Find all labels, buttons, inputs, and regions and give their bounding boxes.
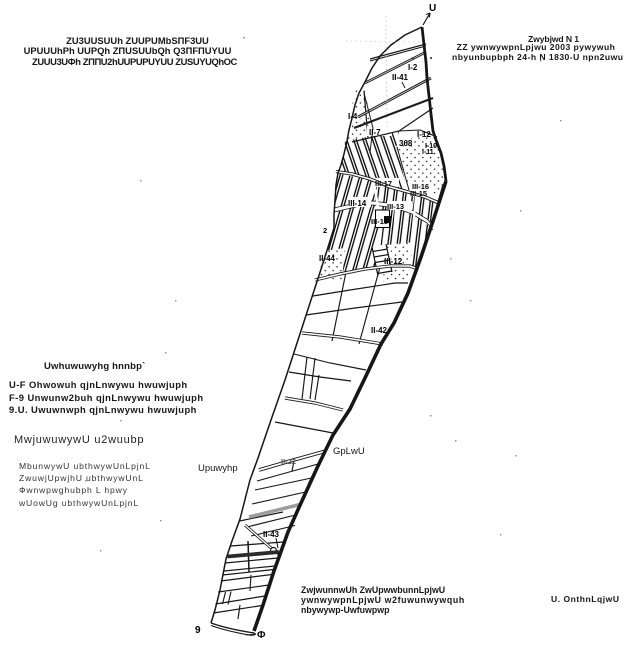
svg-text:II-7: II-7 xyxy=(369,128,381,137)
svg-text:II-22: II-22 xyxy=(281,457,296,466)
svg-text:III-17: III-17 xyxy=(375,179,392,188)
svg-text:II-41: II-41 xyxy=(392,73,409,82)
svg-text:I-12: I-12 xyxy=(417,130,431,139)
svg-text:U: U xyxy=(429,3,436,14)
svg-text:I-2: I-2 xyxy=(408,63,418,72)
svg-text:III-18: III-18 xyxy=(371,217,388,226)
svg-text:I-4: I-4 xyxy=(348,112,358,121)
svg-text:9: 9 xyxy=(195,625,201,636)
svg-text:Ф: Ф xyxy=(257,630,266,641)
svg-text:III-13: III-13 xyxy=(387,202,404,211)
svg-text:II-43: II-43 xyxy=(263,530,280,539)
svg-text:368: 368 xyxy=(399,139,413,148)
svg-text:III-14: III-14 xyxy=(348,199,367,208)
svg-text:II-42: II-42 xyxy=(371,326,388,335)
svg-text:2: 2 xyxy=(323,226,327,235)
svg-text:III-12: III-12 xyxy=(384,257,403,266)
svg-text:III-15: III-15 xyxy=(410,189,427,198)
svg-text:I-11: I-11 xyxy=(422,149,434,156)
svg-text:II-44: II-44 xyxy=(319,254,336,263)
